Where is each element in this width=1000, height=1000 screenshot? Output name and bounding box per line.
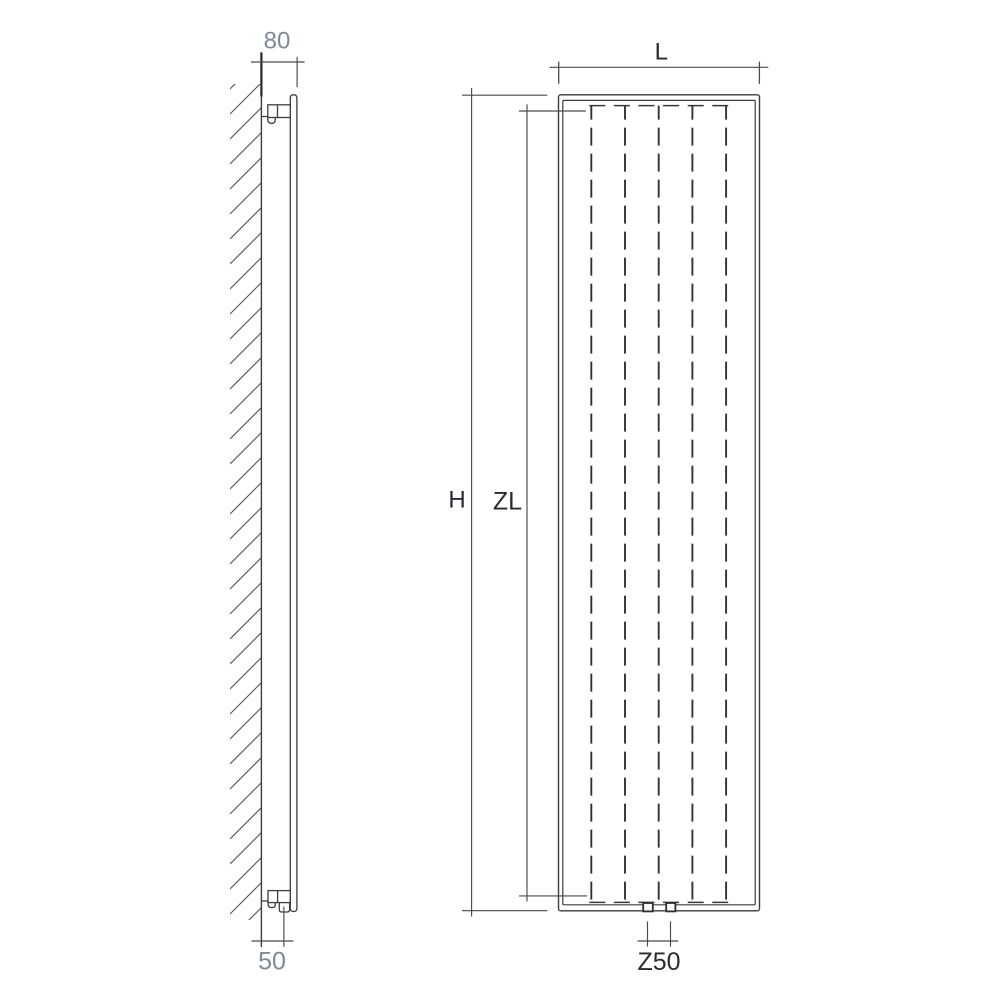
- svg-text:50: 50: [258, 948, 286, 976]
- svg-text:ZL: ZL: [493, 488, 522, 516]
- svg-text:80: 80: [264, 28, 291, 55]
- svg-text:H: H: [448, 487, 465, 514]
- svg-text:Z50: Z50: [637, 948, 680, 976]
- svg-text:L: L: [655, 39, 668, 66]
